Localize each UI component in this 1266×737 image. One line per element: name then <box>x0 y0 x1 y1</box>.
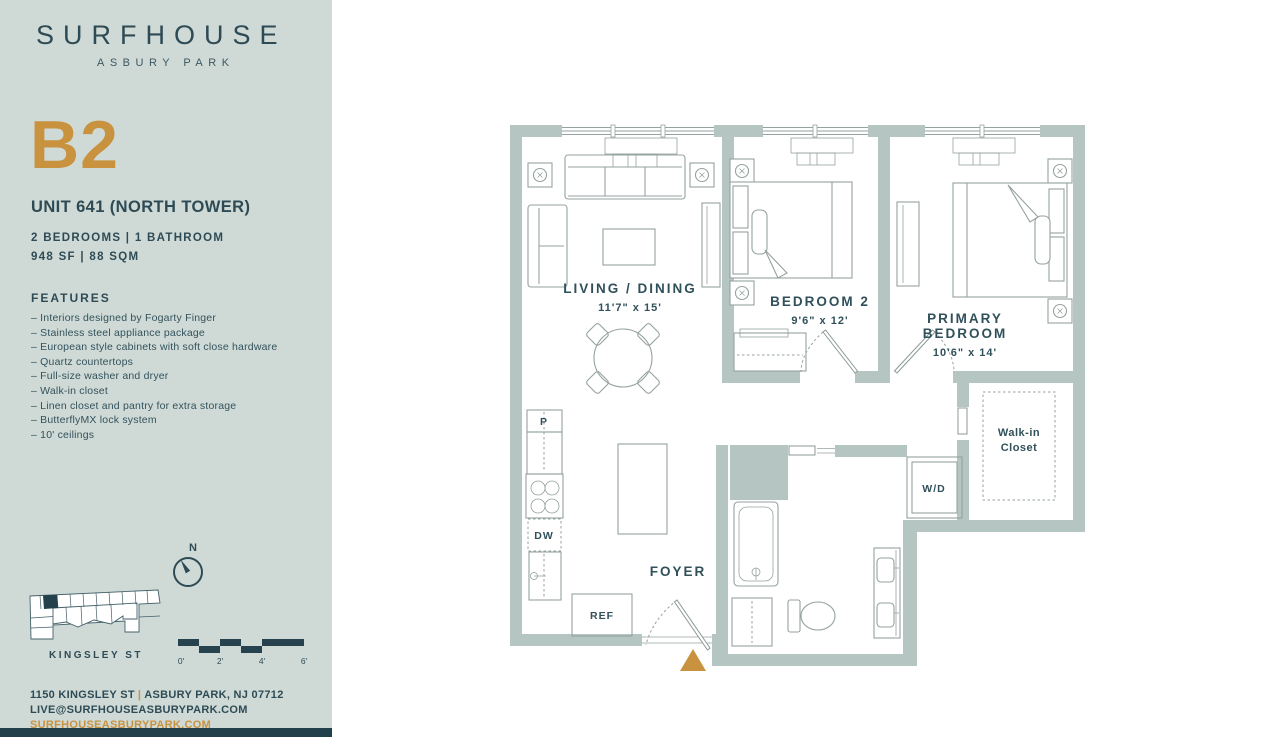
sidebar: SURFHOUSE ASBURY PARK B2 UNIT 641 (NORTH… <box>0 0 332 737</box>
scale-tick: 0' <box>178 656 185 666</box>
features-heading: FEATURES <box>31 291 111 305</box>
unit-title: UNIT 641 (NORTH TOWER) <box>31 198 250 217</box>
unit-plan-code: B2 <box>30 106 119 184</box>
floorplan-drawing: P DW REF <box>490 110 1100 675</box>
entry-arrow-marker <box>680 649 706 671</box>
building-keyplan <box>26 586 166 650</box>
scale-tick: 4' <box>259 656 266 666</box>
street-label: KINGSLEY ST <box>26 650 166 661</box>
media-console <box>702 203 720 287</box>
living-room-dims: 11'7" x 15' <box>598 302 662 314</box>
bedroom2-label: BEDROOM 2 <box>770 294 870 309</box>
feature-item: Walk-in closet <box>31 384 277 399</box>
primary-bedroom-label-line1: PRIMARY <box>927 311 1003 326</box>
feature-item: European style cabinets with soft close … <box>31 340 277 355</box>
scale-tick: 6' <box>301 656 308 666</box>
primary-bedroom-dims: 10'6" x 14' <box>933 347 997 359</box>
dining-set <box>585 322 660 394</box>
address-line: 1150 KINGSLEY ST|ASBURY PARK, NJ 07712 <box>30 688 284 703</box>
email-line: LIVE@SURFHOUSEASBURYPARK.COM <box>30 703 284 718</box>
primary-bedroom-label-line2: BEDROOM <box>923 326 1008 341</box>
entry-door <box>642 600 712 650</box>
walkin-closet-label-line1: Walk-in <box>998 427 1040 439</box>
kitchen-counter-run <box>526 410 563 600</box>
primary-dresser <box>897 202 919 286</box>
feature-item: Quartz countertops <box>31 355 277 370</box>
sidebar-bottom-accent-bar <box>0 728 332 737</box>
toilet <box>788 600 835 632</box>
brand-location: ASBURY PARK <box>97 57 235 69</box>
unit-bed-bath: 2 BEDROOMS | 1 BATHROOM <box>31 232 224 244</box>
feature-item: Linen closet and pantry for extra storag… <box>31 399 277 414</box>
linen-closet <box>732 598 772 646</box>
coffee-table <box>603 229 655 265</box>
bathroom-pocket-door <box>789 446 835 455</box>
refrigerator-label: REF <box>590 610 614 622</box>
pantry-label: P <box>540 416 548 428</box>
feature-item: ButterflyMX lock system <box>31 413 277 428</box>
features-list: Interiors designed by Fogarty Finger Sta… <box>31 311 277 442</box>
unit-area: 948 SF | 88 SQM <box>31 251 139 263</box>
sofa <box>565 155 685 199</box>
brand-logo: SURFHOUSE <box>36 20 287 51</box>
bedroom2-dims: 9'6" x 12' <box>791 315 848 327</box>
living-room-label: LIVING / DINING <box>563 281 697 296</box>
bedroom2-bed <box>730 182 852 278</box>
address-separator: | <box>135 689 144 701</box>
loveseat <box>528 205 567 287</box>
feature-item: 10' ceilings <box>31 428 277 443</box>
kitchen-island <box>618 444 667 534</box>
north-label: N <box>189 542 197 554</box>
ptac-units <box>605 138 1015 167</box>
dishwasher-label: DW <box>534 530 554 542</box>
feature-item: Stainless steel appliance package <box>31 326 277 341</box>
unit-location-highlight <box>43 595 58 609</box>
bedroom2-door <box>801 330 858 373</box>
primary-bed <box>953 183 1067 297</box>
north-compass-icon: N <box>168 538 214 594</box>
bedroom2-dresser <box>734 329 806 371</box>
contact-block: 1150 KINGSLEY ST|ASBURY PARK, NJ 07712 L… <box>30 688 284 733</box>
walkin-closet-label-line2: Closet <box>1001 442 1038 454</box>
windows <box>562 125 1040 137</box>
foyer-label: FOYER <box>650 564 707 579</box>
double-vanity <box>874 548 900 638</box>
scale-tick: 2' <box>217 656 224 666</box>
scale-bar: 0' 2' 4' 6' <box>178 639 310 667</box>
floorplan-sheet: SURFHOUSE ASBURY PARK B2 UNIT 641 (NORTH… <box>0 0 1266 737</box>
washer-dryer-label: W/D <box>922 483 945 495</box>
walkin-pocket-door <box>958 408 967 434</box>
feature-item: Full-size washer and dryer <box>31 369 277 384</box>
bathtub <box>734 502 778 586</box>
feature-item: Interiors designed by Fogarty Finger <box>31 311 277 326</box>
